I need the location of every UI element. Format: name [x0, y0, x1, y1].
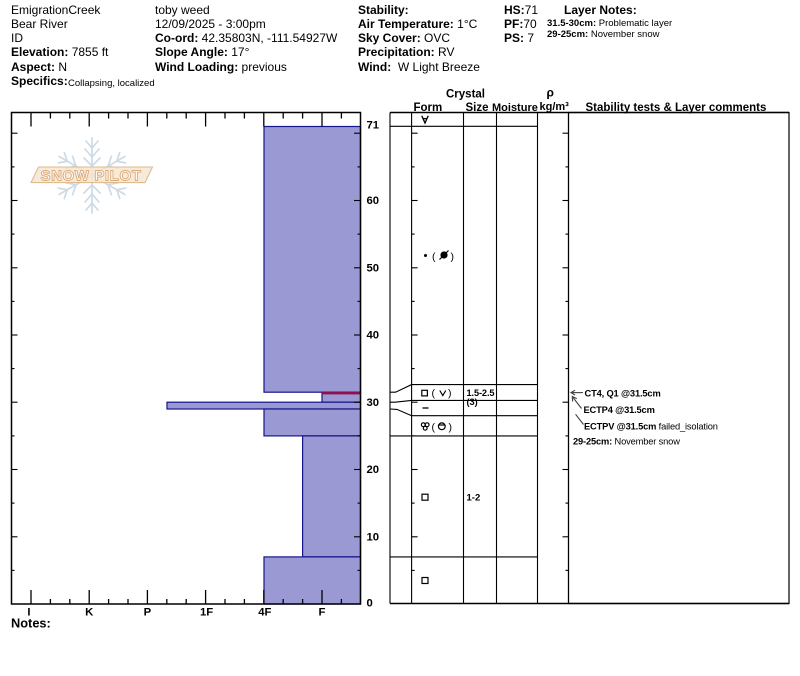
- svg-text:(: (: [432, 422, 436, 434]
- svg-text:Form: Form: [414, 102, 443, 114]
- svg-text:40: 40: [367, 330, 380, 342]
- svg-text:Size: Size: [466, 102, 489, 114]
- svg-text:Notes:: Notes:: [11, 616, 51, 631]
- svg-text:50: 50: [367, 263, 380, 275]
- svg-text:29-25cm: November snow: 29-25cm: November snow: [573, 436, 680, 446]
- svg-text:): ): [448, 388, 452, 400]
- svg-text:CT4, Q1 @31.5cm: CT4, Q1 @31.5cm: [585, 388, 661, 398]
- svg-text:F: F: [319, 607, 326, 619]
- svg-text:ECTP4 @31.5cm: ECTP4 @31.5cm: [584, 405, 655, 415]
- svg-text:10: 10: [367, 532, 380, 544]
- svg-text:Stability tests & Layer commen: Stability tests & Layer comments: [586, 102, 767, 114]
- svg-text:60: 60: [367, 195, 380, 207]
- svg-text:ρ: ρ: [547, 86, 554, 100]
- svg-text:): ): [451, 251, 455, 263]
- svg-text:kg/m³: kg/m³: [540, 101, 570, 113]
- svg-text:1-2: 1-2: [467, 493, 481, 504]
- svg-text:): ): [449, 422, 453, 434]
- svg-text:30: 30: [367, 397, 380, 409]
- svg-text:K: K: [85, 607, 94, 619]
- svg-text:SNOW PILOT: SNOW PILOT: [41, 168, 142, 185]
- svg-text:(: (: [432, 251, 436, 263]
- svg-text:4F: 4F: [258, 607, 271, 619]
- svg-text:71: 71: [367, 120, 380, 132]
- svg-text:(: (: [432, 388, 436, 400]
- svg-text:(3): (3): [467, 397, 478, 407]
- svg-text:1F: 1F: [200, 607, 213, 619]
- svg-text:0: 0: [367, 598, 373, 610]
- svg-text:Crystal: Crystal: [446, 89, 485, 101]
- svg-text:Moisture: Moisture: [492, 102, 538, 114]
- svg-text:P: P: [144, 607, 152, 619]
- svg-text:20: 20: [367, 464, 380, 476]
- svg-text:ECTPV @31.5cm failed_isolation: ECTPV @31.5cm failed_isolation: [584, 422, 718, 432]
